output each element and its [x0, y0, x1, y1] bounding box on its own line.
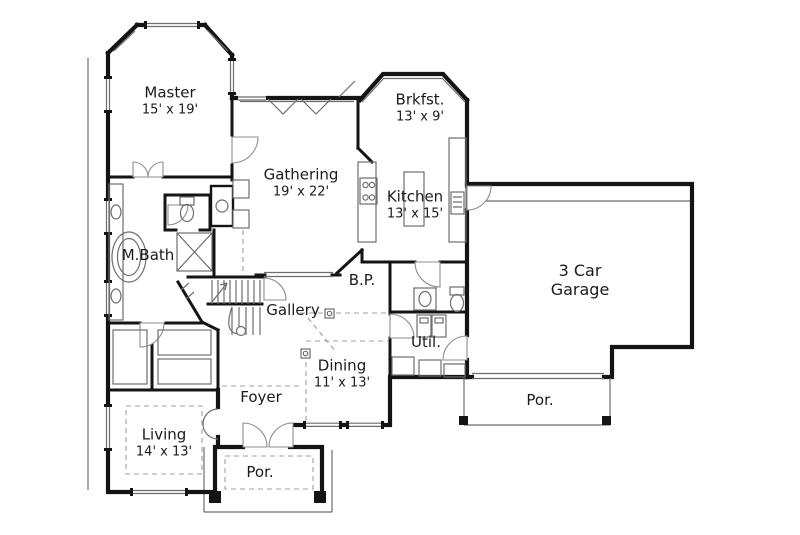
builtin-cabinet [233, 210, 249, 228]
sink [111, 289, 121, 303]
closet-shelving [113, 330, 211, 384]
master-french-door [148, 162, 163, 177]
floor-plan: Master 15' x 19' M.Bath Living 14' x 13'… [0, 0, 800, 535]
porch-post [602, 416, 611, 425]
room-name: Por. [526, 392, 553, 410]
room-label-dining: Dining 11' x 13' [314, 357, 370, 390]
room-name: Garage [551, 281, 610, 300]
room-name: Gallery [266, 302, 319, 320]
room-name: M.Bath [122, 247, 175, 265]
column [325, 309, 334, 318]
room-name: Gathering [264, 166, 339, 184]
utility-garage-door [443, 336, 467, 360]
room-name: Living [136, 426, 192, 444]
room-dimensions: 13' x 15' [387, 206, 443, 221]
room-name: Dining [314, 357, 370, 375]
room-label-porch-front: Por. [246, 464, 273, 482]
oven [451, 192, 464, 214]
room-name: 3 Car [551, 262, 610, 281]
room-name: Master [142, 84, 198, 102]
builtin-cabinet [233, 180, 249, 198]
toilet [451, 295, 464, 312]
bath-vestibule-door [168, 205, 188, 225]
room-name: Foyer [240, 389, 282, 407]
room-name: Brkfst. [396, 91, 445, 109]
master-french-door [133, 162, 148, 177]
sink [111, 205, 121, 219]
powder-room-fixtures [414, 287, 464, 312]
room-label-master: Master 15' x 19' [142, 84, 198, 117]
kitchen-counter [449, 138, 466, 242]
cooktop [360, 178, 377, 204]
living-double-door [203, 409, 218, 439]
room-label-util: Util. [411, 334, 441, 352]
room-name: Por. [246, 464, 273, 482]
closet-door [140, 323, 164, 347]
room-dimensions: 11' x 13' [314, 375, 370, 390]
stair-hall-door [264, 278, 286, 300]
sink [419, 292, 431, 307]
floor-plan-drawing [0, 0, 800, 535]
toilet-tank [180, 197, 194, 205]
room-name: B.P. [349, 272, 376, 290]
room-label-mbath: M.Bath [122, 247, 175, 265]
room-label-foyer: Foyer [240, 389, 282, 407]
front-door [269, 423, 293, 447]
room-name: Util. [411, 334, 441, 352]
stair-newel [237, 327, 246, 336]
room-dimensions: 14' x 13' [136, 444, 192, 459]
front-door [243, 423, 267, 447]
stair-direction-arrow [212, 283, 227, 302]
garage-entry-door [467, 186, 491, 210]
room-label-garage: 3 Car Garage [551, 262, 610, 300]
fireplace [211, 180, 249, 228]
room-label-living: Living 14' x 13' [136, 426, 192, 459]
room-label-brkfst: Brkfst. 13' x 9' [396, 91, 445, 124]
room-dimensions: 19' x 22' [264, 184, 339, 199]
powder-room-door [415, 262, 440, 287]
porch-post [314, 491, 326, 503]
room-label-kitchen: Kitchen 13' x 15' [387, 188, 443, 221]
room-label-gallery: Gallery [266, 302, 319, 320]
gathering-hall-door [232, 137, 258, 163]
cased-opening [264, 273, 333, 277]
room-dimensions: 13' x 9' [396, 109, 445, 124]
column [301, 349, 310, 358]
kitchen-counter [358, 162, 376, 242]
porch-post [209, 491, 221, 503]
room-dimensions: 15' x 19' [142, 102, 198, 117]
room-label-bp: B.P. [349, 272, 376, 290]
porch-post [459, 416, 468, 425]
room-label-gathering: Gathering 19' x 22' [264, 166, 339, 199]
room-name: Kitchen [387, 188, 443, 206]
toilet-tank [450, 287, 464, 295]
room-label-porch-rear: Por. [526, 392, 553, 410]
